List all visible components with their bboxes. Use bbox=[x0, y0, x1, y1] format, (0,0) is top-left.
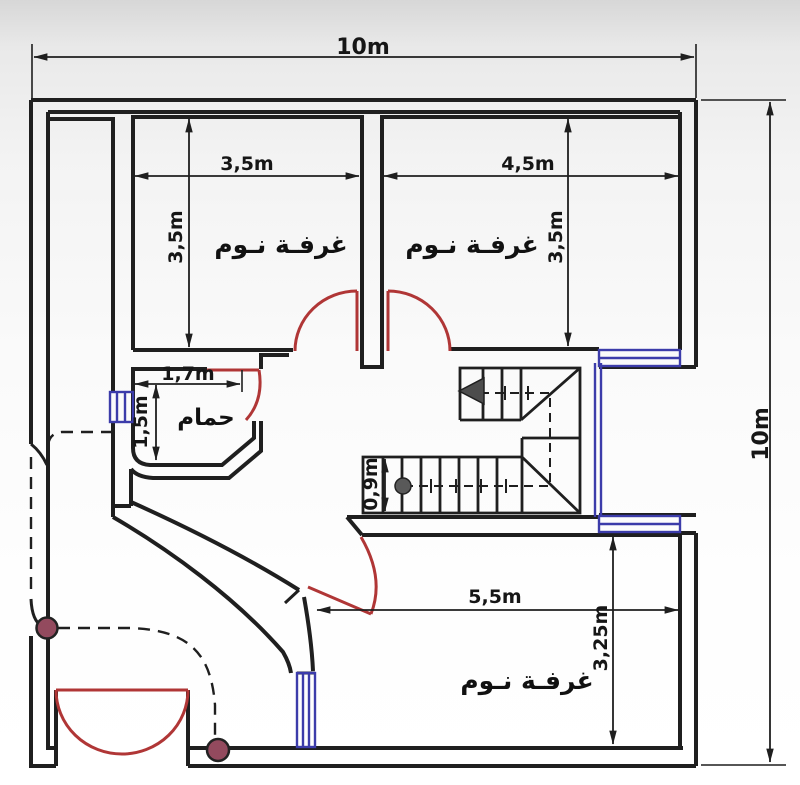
dashed-line-porch bbox=[58, 628, 215, 737]
floor-plan-sheet: 10m 10m 3,5m 3,5m 4,5m 3,5m 1,7m 1,5m 0,… bbox=[0, 0, 800, 785]
stair-walk-line-start-dot bbox=[395, 478, 411, 494]
dim-bedroom2-depth: 3,5m bbox=[545, 210, 567, 263]
window-bedroom3 bbox=[297, 673, 315, 747]
doors bbox=[56, 291, 450, 754]
room-label-bedroom-bottom: غرفـة نـوم bbox=[460, 666, 593, 696]
window-bathroom-midlines bbox=[117, 392, 125, 422]
stair-direction-arrow bbox=[459, 378, 484, 404]
entrance-double-door bbox=[56, 690, 188, 754]
dim-bedroom3-width: 5,5m bbox=[468, 586, 521, 608]
room-label-bathroom: حمام bbox=[177, 405, 235, 431]
curved-wall-outer bbox=[113, 517, 291, 673]
wall-left-inner bbox=[48, 112, 56, 748]
wall-right-inner-lower bbox=[680, 533, 696, 747]
bathroom-wall-step bbox=[113, 422, 131, 517]
room-label-bedroom-top-right: غرفـة نـوم bbox=[405, 230, 538, 260]
dim-stair-width: 0,9m bbox=[360, 457, 382, 510]
dim-bathroom-depth: 1,5m bbox=[130, 395, 152, 448]
dim-bedroom2-width: 4,5m bbox=[501, 153, 554, 175]
room-label-bedroom-top-left: غرفـة نـوم bbox=[214, 230, 347, 260]
dim-bathroom-width: 1,7m bbox=[161, 363, 214, 385]
floor-plan-drawing: 10m 10m 3,5m 3,5m 4,5m 3,5m 1,7m 1,5m 0,… bbox=[0, 0, 800, 785]
curved-wall-inner-tail bbox=[304, 597, 313, 671]
left-wall-curve-joint bbox=[31, 444, 47, 465]
hall-step-wall bbox=[261, 355, 289, 369]
dim-bedroom3-depth: 3,25m bbox=[590, 605, 612, 672]
dim-bedroom1-depth: 3,5m bbox=[165, 210, 187, 263]
stairwell-glazed-wall bbox=[595, 363, 601, 517]
column-dot-bottom bbox=[207, 739, 229, 761]
column-dot-left bbox=[37, 618, 58, 639]
dim-overall-width: 10m bbox=[336, 35, 390, 60]
door-bedroom-top-left bbox=[295, 291, 357, 351]
door-bedroom-bottom bbox=[308, 537, 376, 614]
dimensions: 10m 10m 3,5m 3,5m 4,5m 3,5m 1,7m 1,5m 0,… bbox=[32, 35, 786, 765]
stair-walk-line-ticks bbox=[431, 386, 557, 493]
staircase bbox=[363, 368, 580, 513]
door-bedroom-top-right bbox=[388, 291, 450, 351]
dim-bedroom1-width: 3,5m bbox=[220, 153, 273, 175]
dim-overall-height: 10m bbox=[749, 407, 774, 461]
window-bedroom3-midlines bbox=[303, 673, 309, 747]
curved-wall-door-cap bbox=[285, 590, 299, 603]
corridor-strip-wall bbox=[50, 119, 113, 392]
dashed-line-upper bbox=[48, 432, 113, 446]
